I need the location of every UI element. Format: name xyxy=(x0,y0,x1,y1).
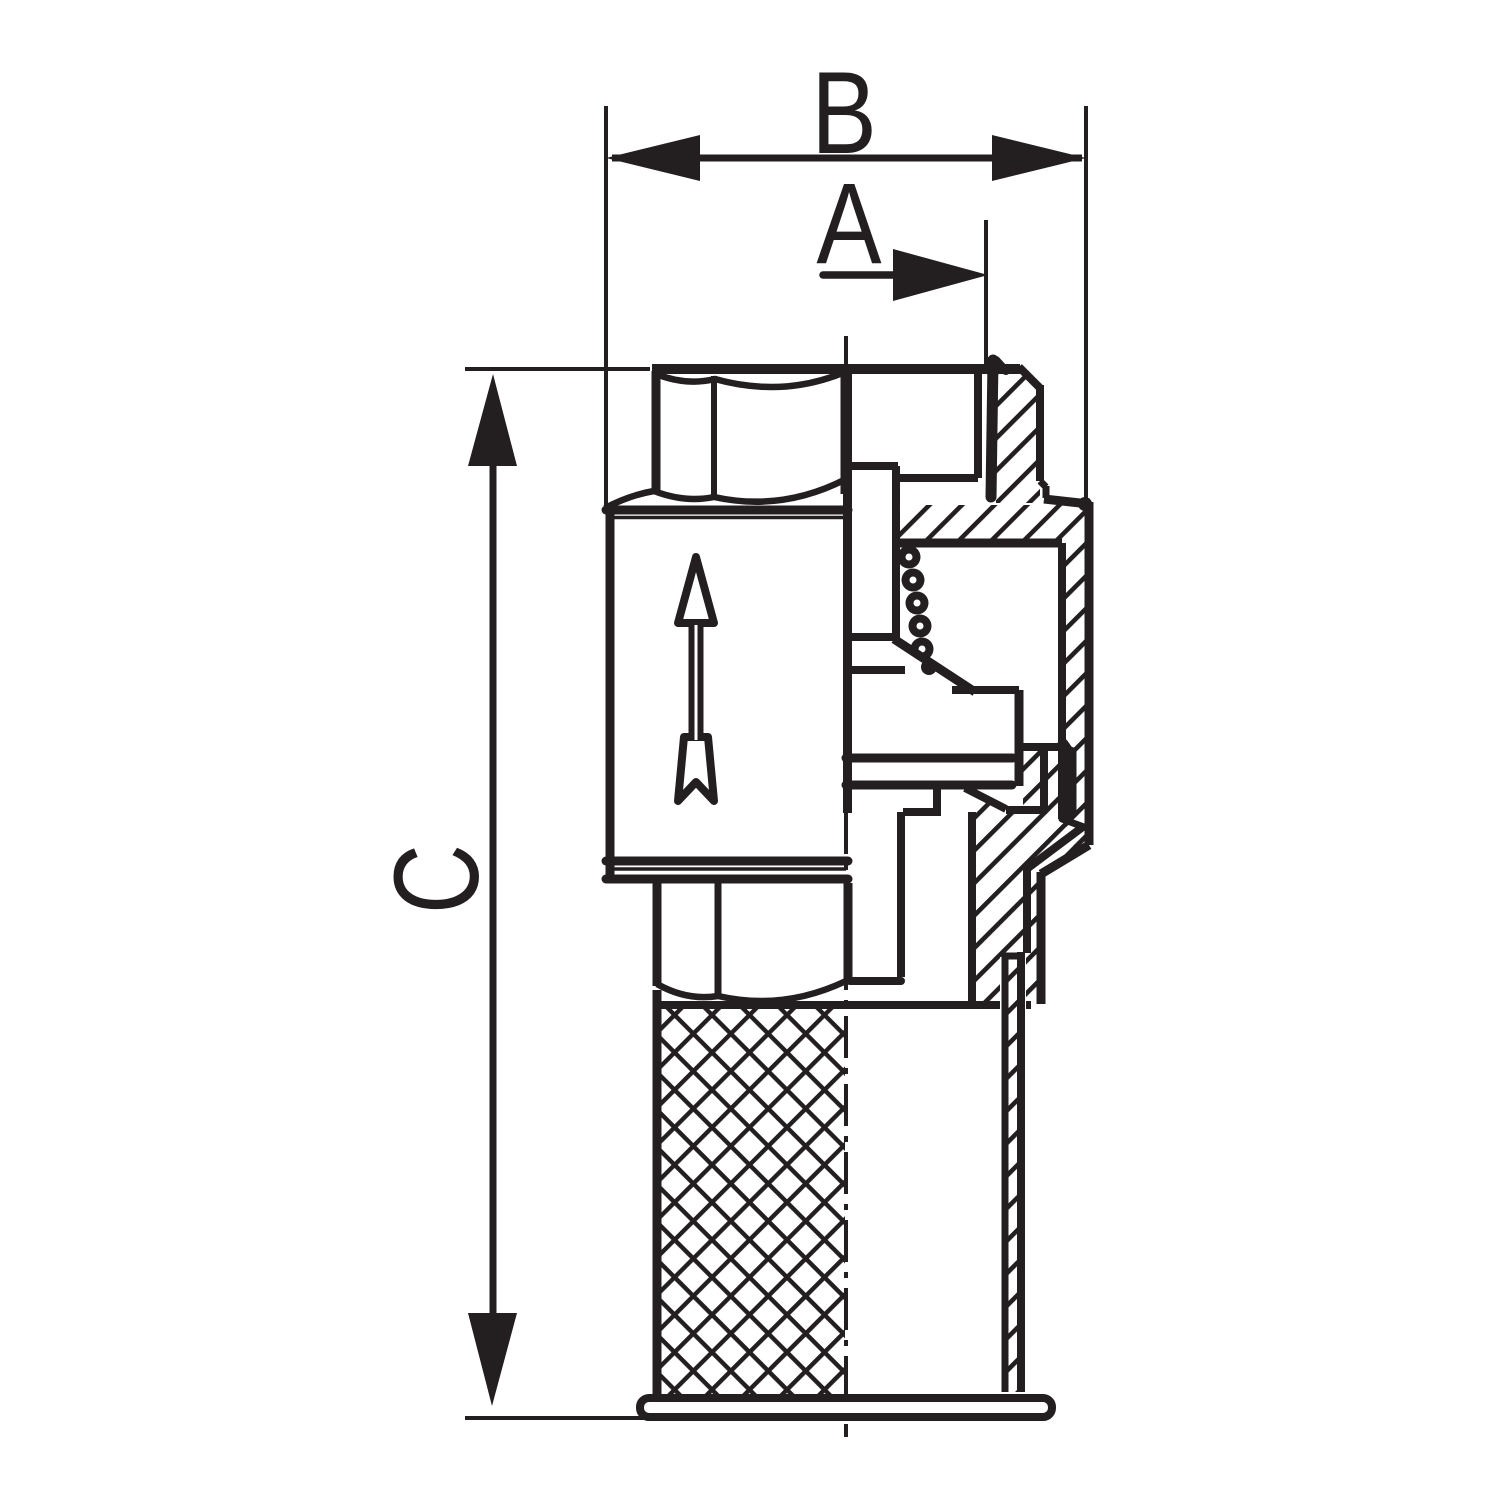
svg-text:C: C xyxy=(370,844,505,914)
svg-text:A: A xyxy=(816,158,881,287)
